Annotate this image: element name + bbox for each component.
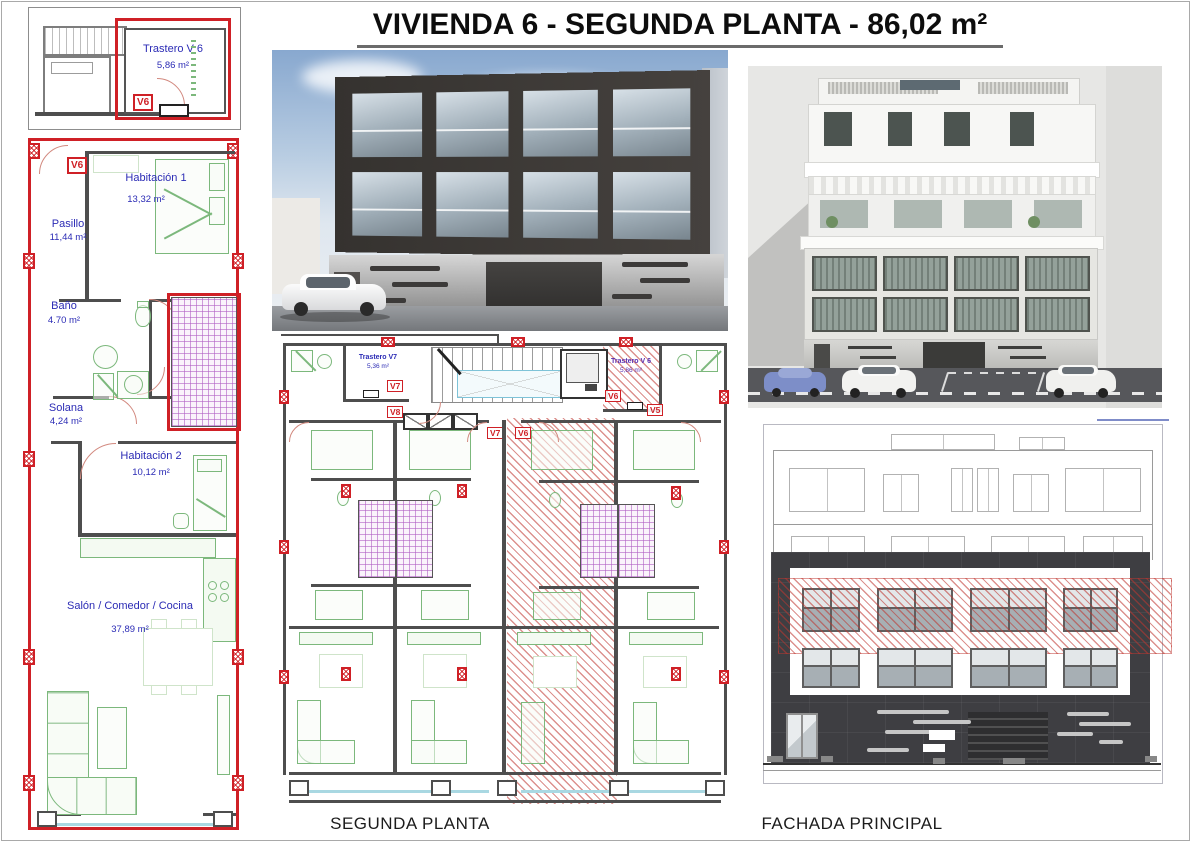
wall-balcony-inner: [289, 772, 721, 775]
outline-window: [1013, 474, 1049, 512]
survey-tick: [1145, 756, 1157, 762]
balcony-pier: [289, 780, 309, 796]
plan-sheet: VIVIENDA 6 - SEGUNDA PLANTA - 86,02 m² T…: [0, 0, 1191, 842]
balcony-pier: [609, 780, 629, 796]
wall-marker: [719, 390, 729, 404]
aerial-render: [748, 66, 1162, 408]
render-window: [1025, 256, 1090, 291]
wall-marker: [341, 484, 351, 498]
car-blue-roof: [778, 368, 812, 378]
stair-landing-marker: [457, 370, 563, 398]
wall-marker: [28, 143, 40, 159]
wall-marker: [232, 775, 244, 791]
hob-burner: [220, 581, 229, 590]
doormat: [363, 390, 379, 398]
room-area-solana: 4,24 m²: [33, 417, 99, 427]
wall-marker: [279, 670, 289, 684]
wall: [539, 480, 699, 483]
bath-fixture-box: [696, 350, 718, 372]
facade-slat: [370, 266, 440, 271]
wall-marker: [279, 390, 289, 404]
entrance-door-mullion: [801, 713, 803, 759]
wall-marker: [23, 253, 35, 269]
terrace-plant: [826, 216, 838, 228]
wall-marker: [23, 775, 35, 791]
bed-pillow: [209, 197, 225, 225]
elevation-drawing: [763, 424, 1167, 808]
penthouse-glass: [944, 112, 970, 146]
facade-white-box: [929, 730, 955, 740]
ground-line: [763, 763, 1161, 765]
car-wheel: [896, 388, 906, 398]
outline-door: [951, 468, 973, 512]
room-label-habitacion2: Habitación 2: [86, 451, 216, 463]
wall-marker: [457, 667, 467, 681]
tag-v5-unit: V5: [647, 404, 663, 416]
elevator-car: [566, 353, 599, 383]
wall-marker: [23, 451, 35, 467]
survey-tick: [933, 758, 945, 764]
dining-table: [143, 628, 213, 686]
hob-burner: [208, 581, 217, 590]
render-window: [954, 297, 1019, 332]
outline-side: [773, 450, 774, 560]
car-wheel: [772, 388, 781, 397]
car-wheel: [810, 388, 819, 397]
bed-single: [533, 592, 581, 620]
wall: [539, 586, 699, 589]
dining-chair: [181, 685, 197, 695]
elevation-window: [1063, 648, 1118, 688]
ground-slat: [848, 346, 892, 349]
roof-gravel: [978, 82, 1068, 94]
floor-plan-caption: SEGUNDA PLANTA: [300, 814, 520, 834]
storage-left-area: 5,36 m²: [349, 364, 407, 371]
inset-trastero-name: Trastero V 6: [127, 44, 219, 56]
car-wheel: [1054, 388, 1064, 398]
wall: [311, 478, 471, 481]
sidewalk-right: [1106, 66, 1162, 408]
dark-floors: [804, 248, 1098, 340]
wall-marker: [619, 337, 633, 347]
inset-trastero-area: 5,86 m²: [127, 61, 219, 71]
inset-tag-v6: V6: [133, 94, 153, 111]
tag-v6-storage: V6: [605, 390, 621, 402]
wall: [289, 626, 719, 629]
elevation-window: [802, 648, 860, 688]
render-window: [1025, 297, 1090, 332]
survey-tick: [1003, 758, 1025, 764]
room-label-solana: Solana: [33, 403, 99, 415]
facade-slat: [622, 262, 688, 267]
survey-tick: [821, 756, 833, 762]
wall: [311, 584, 471, 587]
outline-door: [977, 468, 999, 512]
bed-single: [647, 592, 695, 620]
ground-slat: [1010, 356, 1046, 359]
reference-line-blue: [1097, 419, 1169, 421]
sink-basin: [93, 345, 118, 369]
bed-single: [421, 590, 469, 620]
photo-window: [613, 88, 690, 156]
toilet: [135, 305, 151, 327]
facade-slat: [392, 282, 448, 287]
room-label-habitacion1: Habitación 1: [91, 173, 221, 185]
room-area-bano: 4.70 m²: [33, 316, 95, 326]
sofa: [411, 740, 467, 764]
room-label-bano: Baño: [33, 301, 95, 313]
wall-marker: [23, 649, 35, 665]
balcony-glass: [45, 823, 223, 826]
wall: [343, 346, 346, 402]
apartment-tag-v6: V6: [67, 157, 87, 174]
room-area-salon: 37,89 m²: [45, 625, 215, 635]
storage-inset-panel: Trastero V 6 5,86 m² V6: [28, 7, 241, 130]
wall: [281, 334, 499, 336]
photo-window: [523, 90, 598, 157]
wall-exterior-right: [724, 343, 727, 775]
bed-double: [409, 430, 471, 470]
tag-v8-unit: V8: [387, 406, 403, 418]
facade-strip: [877, 710, 949, 714]
wall-marker: [279, 540, 289, 554]
patio-highlight: [167, 293, 241, 431]
car-wheel: [850, 388, 860, 398]
storage-right-name: Trastero V 6: [603, 358, 659, 365]
kitchen-counter: [517, 632, 591, 645]
wall: [78, 533, 236, 537]
storage-left-name: Trastero V7: [349, 354, 407, 361]
tv-unit: [217, 695, 230, 775]
elevator-counterweight: [585, 384, 597, 391]
photo-window: [352, 93, 422, 158]
coffee-table: [97, 707, 127, 769]
wall: [343, 399, 409, 402]
facade-strip: [1079, 722, 1131, 726]
bath-fixture-basin: [677, 354, 692, 369]
render-window: [812, 256, 877, 291]
wall-units-top: [521, 420, 721, 423]
elevation-window: [970, 648, 1047, 688]
car-wheel: [360, 302, 374, 316]
wardrobe: [93, 155, 139, 173]
ground-slat: [860, 356, 896, 359]
terrace-glass: [964, 200, 1012, 228]
wall: [78, 441, 82, 535]
wall: [85, 151, 235, 154]
sofa: [521, 702, 545, 764]
room-label-pasillo: Pasillo: [33, 219, 103, 231]
balcony-pier: [431, 780, 451, 796]
wall-party: [393, 420, 397, 774]
render-window: [954, 256, 1019, 291]
bed-single: [315, 590, 363, 620]
dining-table: [533, 656, 577, 688]
kitchen-counter: [629, 632, 703, 645]
inset-green-ticks: [191, 36, 196, 96]
tag-v7-door: V7: [487, 427, 503, 439]
pergola-slats: [808, 176, 1096, 196]
wall-balcony-outer: [289, 800, 721, 803]
wall-party: [502, 420, 506, 774]
sidewalk-line: [763, 770, 1161, 771]
car-window: [306, 277, 350, 288]
wall-exterior-left: [283, 343, 286, 775]
ground-door: [814, 344, 830, 368]
parking-dashes: [948, 372, 1040, 374]
terrace-plant: [1028, 216, 1040, 228]
kitchen-counter: [299, 632, 373, 645]
patio-grid: [580, 504, 618, 578]
wall-marker: [232, 253, 244, 269]
facade-slat: [640, 278, 690, 283]
elevation-caption: FACHADA PRINCIPAL: [742, 814, 962, 834]
roof-outline: [1019, 437, 1065, 450]
car-windshield: [862, 367, 896, 374]
elevation-v6-hatch: [778, 578, 1172, 654]
balcony-pier: [497, 780, 517, 796]
sofa: [297, 740, 355, 764]
ground-garage: [923, 342, 985, 368]
washing-machine-drum: [124, 375, 143, 394]
bath-fixture-basin: [317, 354, 332, 369]
toilet-tank: [137, 301, 149, 308]
wall-marker: [671, 667, 681, 681]
garage-door-elevation: [968, 712, 1048, 760]
patio-grid: [618, 504, 655, 578]
page-title-text: VIVIENDA 6 - SEGUNDA PLANTA - 86,02 m²: [357, 8, 1004, 48]
balcony-pier: [213, 811, 233, 827]
inset-doormat: [159, 104, 189, 117]
photo-window: [523, 172, 598, 239]
facade-strip: [913, 720, 971, 724]
room-area-habitacion1: 13,32 m²: [91, 195, 201, 205]
tag-v6-door: V6: [515, 427, 531, 439]
kitchen-counter: [80, 538, 216, 558]
outline-window: [883, 474, 919, 512]
wall-party: [614, 420, 618, 774]
elevation-window: [877, 648, 953, 688]
hob-burner: [220, 593, 229, 602]
photo-window: [352, 172, 422, 236]
bed-double: [311, 430, 373, 470]
facade-strip: [1057, 732, 1093, 736]
doormat: [627, 402, 643, 410]
balcony-pier: [705, 780, 725, 796]
page-title: VIVIENDA 6 - SEGUNDA PLANTA - 86,02 m²: [285, 8, 1075, 48]
wall: [51, 441, 80, 444]
photo-window: [436, 91, 508, 157]
parapet-line: [773, 450, 1153, 451]
wall-marker: [457, 484, 467, 498]
facade-strip: [1099, 740, 1123, 744]
render-window: [883, 297, 948, 332]
bath-fixture-box: [291, 350, 313, 372]
facade-upper-dark: [335, 70, 710, 258]
kitchen-counter: [407, 632, 481, 645]
wall-marker: [719, 670, 729, 684]
ground-slat: [998, 346, 1042, 349]
shower-tray: [93, 373, 114, 400]
sofa: [633, 740, 689, 764]
parapet-line: [773, 524, 1153, 525]
car-wheel: [1098, 388, 1108, 398]
terrace-glass: [894, 200, 942, 228]
photo-window: [436, 172, 508, 237]
photo-window: [613, 172, 690, 240]
roof-skylight: [900, 80, 960, 90]
facade-strip: [1067, 712, 1109, 716]
wall: [118, 441, 236, 444]
apartment-plan-panel: V6 Habitación 1 13,32 m² Pasillo 11,44 m…: [28, 138, 239, 830]
tag-v7-storage: V7: [387, 380, 403, 392]
wall-marker: [511, 337, 525, 347]
wall: [659, 346, 662, 412]
balcony-pier: [37, 811, 57, 827]
facade-strip: [867, 748, 909, 752]
toilet: [549, 492, 561, 508]
room-area-pasillo: 11,44 m²: [33, 233, 103, 243]
wall-marker: [719, 540, 729, 554]
outline-window: [1065, 468, 1141, 512]
penthouse-glass: [1010, 112, 1034, 146]
wall-marker: [341, 667, 351, 681]
render-window: [812, 297, 877, 332]
terrace-glass: [1034, 200, 1082, 228]
wall-marker: [381, 337, 395, 347]
patio-grid: [396, 500, 433, 578]
wall-marker: [671, 486, 681, 500]
render-window: [883, 256, 948, 291]
room-area-habitacion2: 10,12 m²: [86, 468, 216, 478]
car-windshield: [1062, 367, 1094, 374]
survey-tick: [767, 756, 783, 762]
inset-stair-detail: [51, 62, 93, 74]
car-wheel: [294, 302, 308, 316]
roof-outline: [891, 434, 995, 450]
penthouse-glass: [888, 112, 912, 146]
balcony-glass: [299, 790, 489, 793]
patio-grid: [358, 500, 396, 578]
outline-side: [1152, 450, 1153, 560]
room-label-salon: Salón / Comedor / Cocina: [45, 601, 215, 613]
dining-chair: [151, 685, 167, 695]
nightstand: [173, 513, 189, 529]
facade-white-box: [923, 744, 945, 752]
outline-window: [789, 468, 865, 512]
storage-right-area: 5,86 m²: [603, 368, 659, 375]
penthouse-glass: [824, 112, 852, 146]
street-photo-render: [272, 50, 728, 331]
facade-slat: [612, 294, 652, 299]
wall-marker: [232, 649, 244, 665]
floor-plan-panel: Trastero V7 5,36 m² V7 Trastero V 6 5,86…: [281, 334, 729, 806]
